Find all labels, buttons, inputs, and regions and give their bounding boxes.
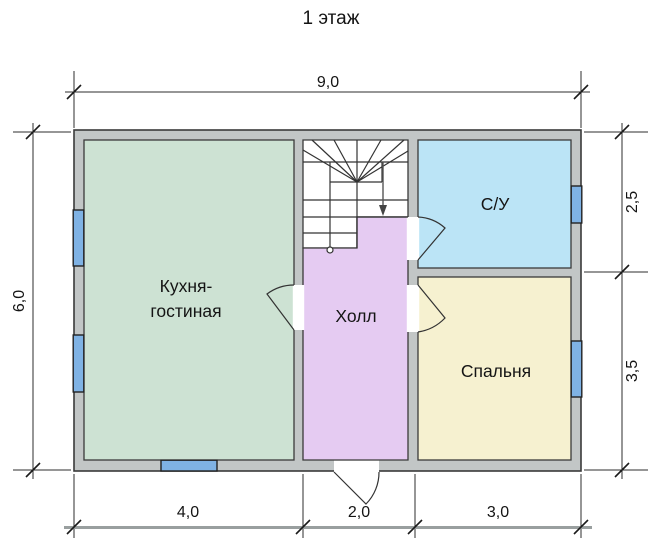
dim-bottom-hall-label: 2,0 (348, 504, 370, 521)
window-right-bedroom (571, 341, 582, 397)
window-left-lower (73, 335, 84, 392)
floor-plan-drawing: 1 этаж Кухня- гостиная Холл С/У Спальня … (0, 0, 661, 560)
floor-plan: 1 этаж Кухня- гостиная Холл С/У Спальня … (0, 0, 661, 560)
dim-top-label: 9,0 (317, 74, 339, 91)
window-left-upper (73, 210, 84, 266)
room-kitchen-living (84, 140, 294, 460)
door-entry (334, 472, 379, 504)
dim-bottom-bedroom-label: 3,0 (487, 504, 509, 521)
dim-left-label: 6,0 (11, 290, 28, 312)
page-title: 1 этаж (303, 8, 360, 29)
dim-right-lower-label: 3,5 (624, 360, 641, 382)
dim-bottom-kitchen-label: 4,0 (177, 504, 199, 521)
window-right-bathroom (571, 186, 582, 223)
room-hall (303, 217, 408, 460)
room-hall-label: Холл (335, 306, 376, 326)
room-kitchen-living-label-line1: Кухня- (160, 276, 213, 296)
stair-start-marker (327, 247, 333, 253)
dim-right-upper-label: 2,5 (624, 191, 641, 213)
window-bottom-kitchen (161, 460, 217, 471)
room-bedroom-label: Спальня (461, 361, 531, 381)
room-bathroom-label: С/У (481, 194, 511, 214)
room-kitchen-living-label-line2: гостиная (150, 301, 221, 321)
